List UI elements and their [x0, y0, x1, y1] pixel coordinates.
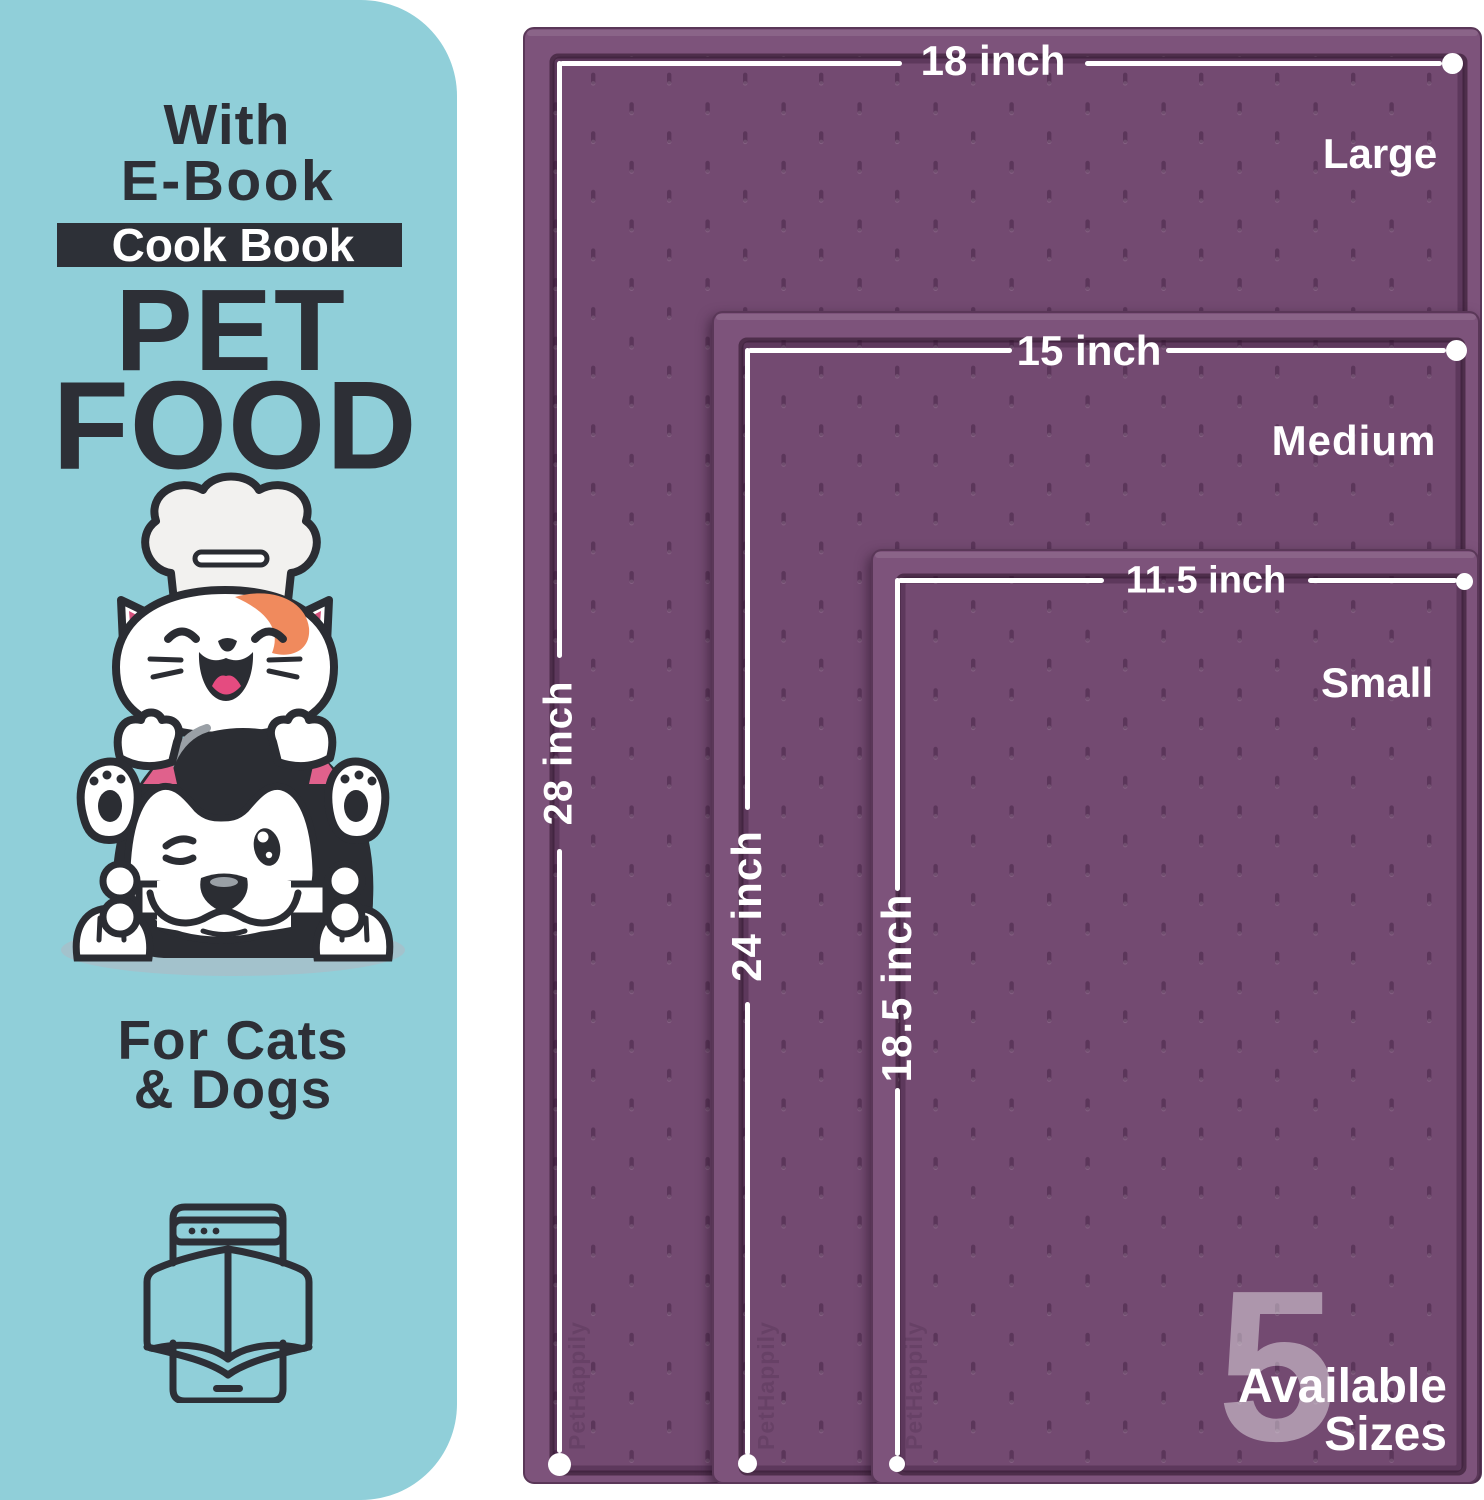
svg-text:PetHappily: PetHappily — [901, 1321, 927, 1450]
svg-text:PetHappily: PetHappily — [753, 1321, 779, 1450]
svg-text:PetHappily: PetHappily — [564, 1321, 590, 1450]
